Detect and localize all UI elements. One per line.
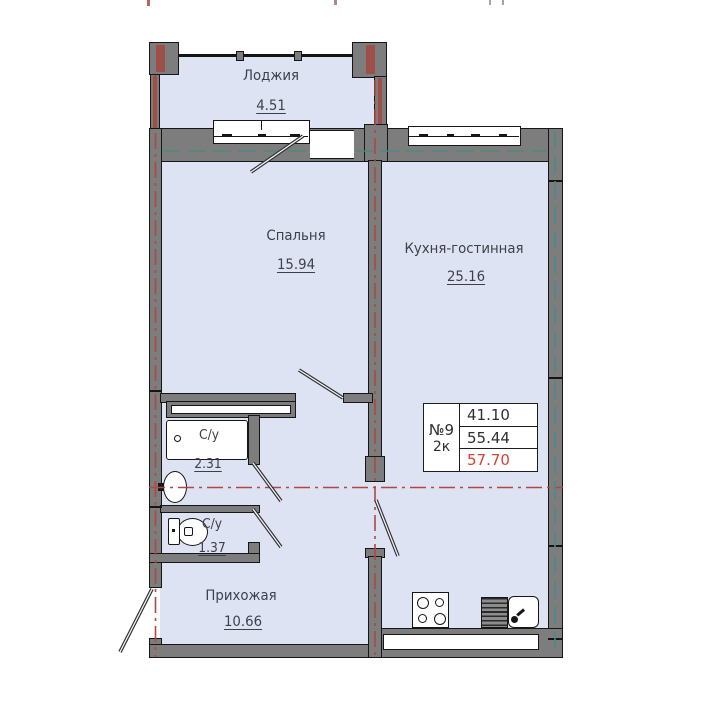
room-area-bath1: 2.31 <box>194 457 222 472</box>
wall-joint <box>548 638 563 640</box>
kitchen-floor <box>375 160 550 628</box>
kitchen-south-window <box>383 634 539 650</box>
room-label-bedroom: Спальня <box>266 228 325 244</box>
wardrobe-niche <box>171 405 291 414</box>
unit-area-row: 55.44 <box>460 427 537 450</box>
washbasin <box>163 471 187 503</box>
central-wall-lower <box>368 556 382 658</box>
washbasin-tap <box>158 483 164 491</box>
loggia-window <box>213 120 310 144</box>
axis-mark <box>378 78 382 129</box>
wall-joint <box>548 377 563 379</box>
unit-total-area-value: 57.70 <box>467 451 510 469</box>
stove <box>412 592 449 628</box>
parapet-post <box>294 51 302 61</box>
room-area-loggia: 4.51 <box>256 98 286 114</box>
wall-joint <box>149 390 162 392</box>
unit-total-area-row: 57.70 <box>460 449 537 471</box>
faucet-icon <box>511 616 518 623</box>
unit-info-table: №9 2к 41.10 55.44 57.70 <box>423 403 538 472</box>
room-area-bath2: 1.37 <box>198 541 226 556</box>
kitchen-north-window <box>408 126 521 146</box>
bedroom-south-wall-b <box>343 393 373 403</box>
room-area-hallway: 10.66 <box>224 614 262 630</box>
parapet-post <box>236 51 244 61</box>
dimension-tick <box>147 0 504 6</box>
central-wall-doorstub <box>365 456 385 482</box>
unit-area-value: 55.44 <box>467 429 510 447</box>
bath1-right-wall <box>248 415 260 465</box>
sink-drainer <box>481 597 508 628</box>
toilet-tank <box>168 518 180 545</box>
unit-area-row: 41.10 <box>460 404 537 427</box>
room-label-kitchen: Кухня-гостинная <box>404 241 523 257</box>
loggia-parapet <box>160 54 378 57</box>
pillar-base <box>364 124 388 162</box>
unit-type: 2к <box>433 439 450 455</box>
axis-mark <box>366 45 375 74</box>
left-wall <box>149 128 162 588</box>
axis-mark <box>153 76 157 129</box>
kitchen-sink <box>508 596 539 628</box>
room-area-kitchen: 25.16 <box>447 269 485 285</box>
loggia-door-opening <box>310 130 354 159</box>
room-label-hallway: Прихожая <box>205 588 276 604</box>
floor-plan: №9 2к 41.10 55.44 57.70 Лоджия 4.51 Спал… <box>0 0 706 706</box>
wall-joint <box>149 506 162 508</box>
wall-joint <box>548 545 563 547</box>
unit-id-cell: №9 2к <box>424 404 460 471</box>
bottom-wall-hallway <box>149 644 385 658</box>
right-wall <box>548 128 563 658</box>
room-label-bath1: С/у <box>199 428 219 443</box>
room-label-bath2: С/у <box>202 517 222 532</box>
wall-joint <box>548 180 563 182</box>
unit-area-value: 41.10 <box>467 406 510 424</box>
room-area-bedroom: 15.94 <box>277 257 315 273</box>
bath-divider-wall <box>160 505 260 513</box>
axis-mark <box>156 45 165 72</box>
room-label-loggia: Лоджия <box>243 68 299 84</box>
central-wall-upper <box>368 160 382 458</box>
unit-number: №9 <box>429 421 454 439</box>
